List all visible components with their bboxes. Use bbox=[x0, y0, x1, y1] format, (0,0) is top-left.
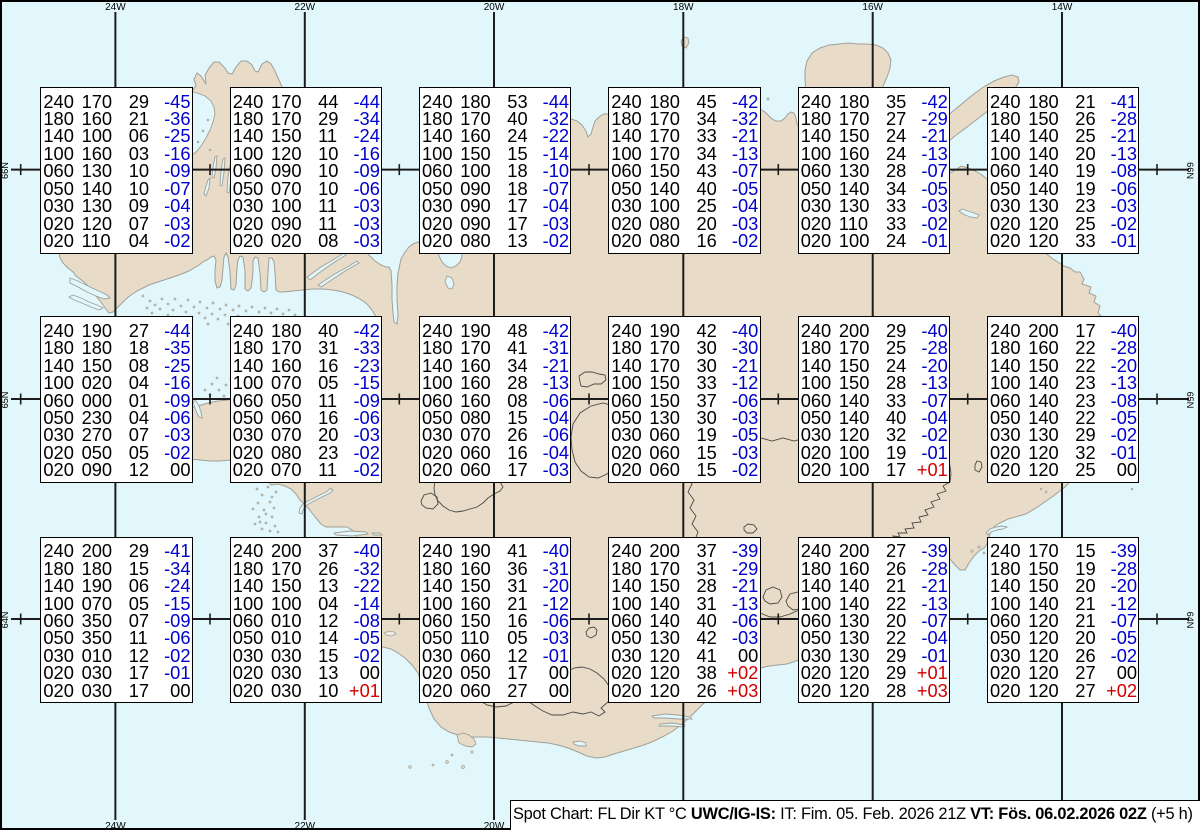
svg-text:20W: 20W bbox=[484, 2, 505, 13]
svg-text:64N: 64N bbox=[1185, 612, 1195, 629]
svg-text:24W: 24W bbox=[105, 2, 126, 13]
svg-text:22W: 22W bbox=[295, 2, 316, 13]
svg-text:65N: 65N bbox=[1185, 392, 1195, 409]
svg-text:66N: 66N bbox=[1185, 162, 1195, 179]
svg-text:14W: 14W bbox=[1052, 2, 1073, 13]
svg-text:16W: 16W bbox=[862, 2, 883, 13]
svg-text:18W: 18W bbox=[673, 2, 694, 13]
